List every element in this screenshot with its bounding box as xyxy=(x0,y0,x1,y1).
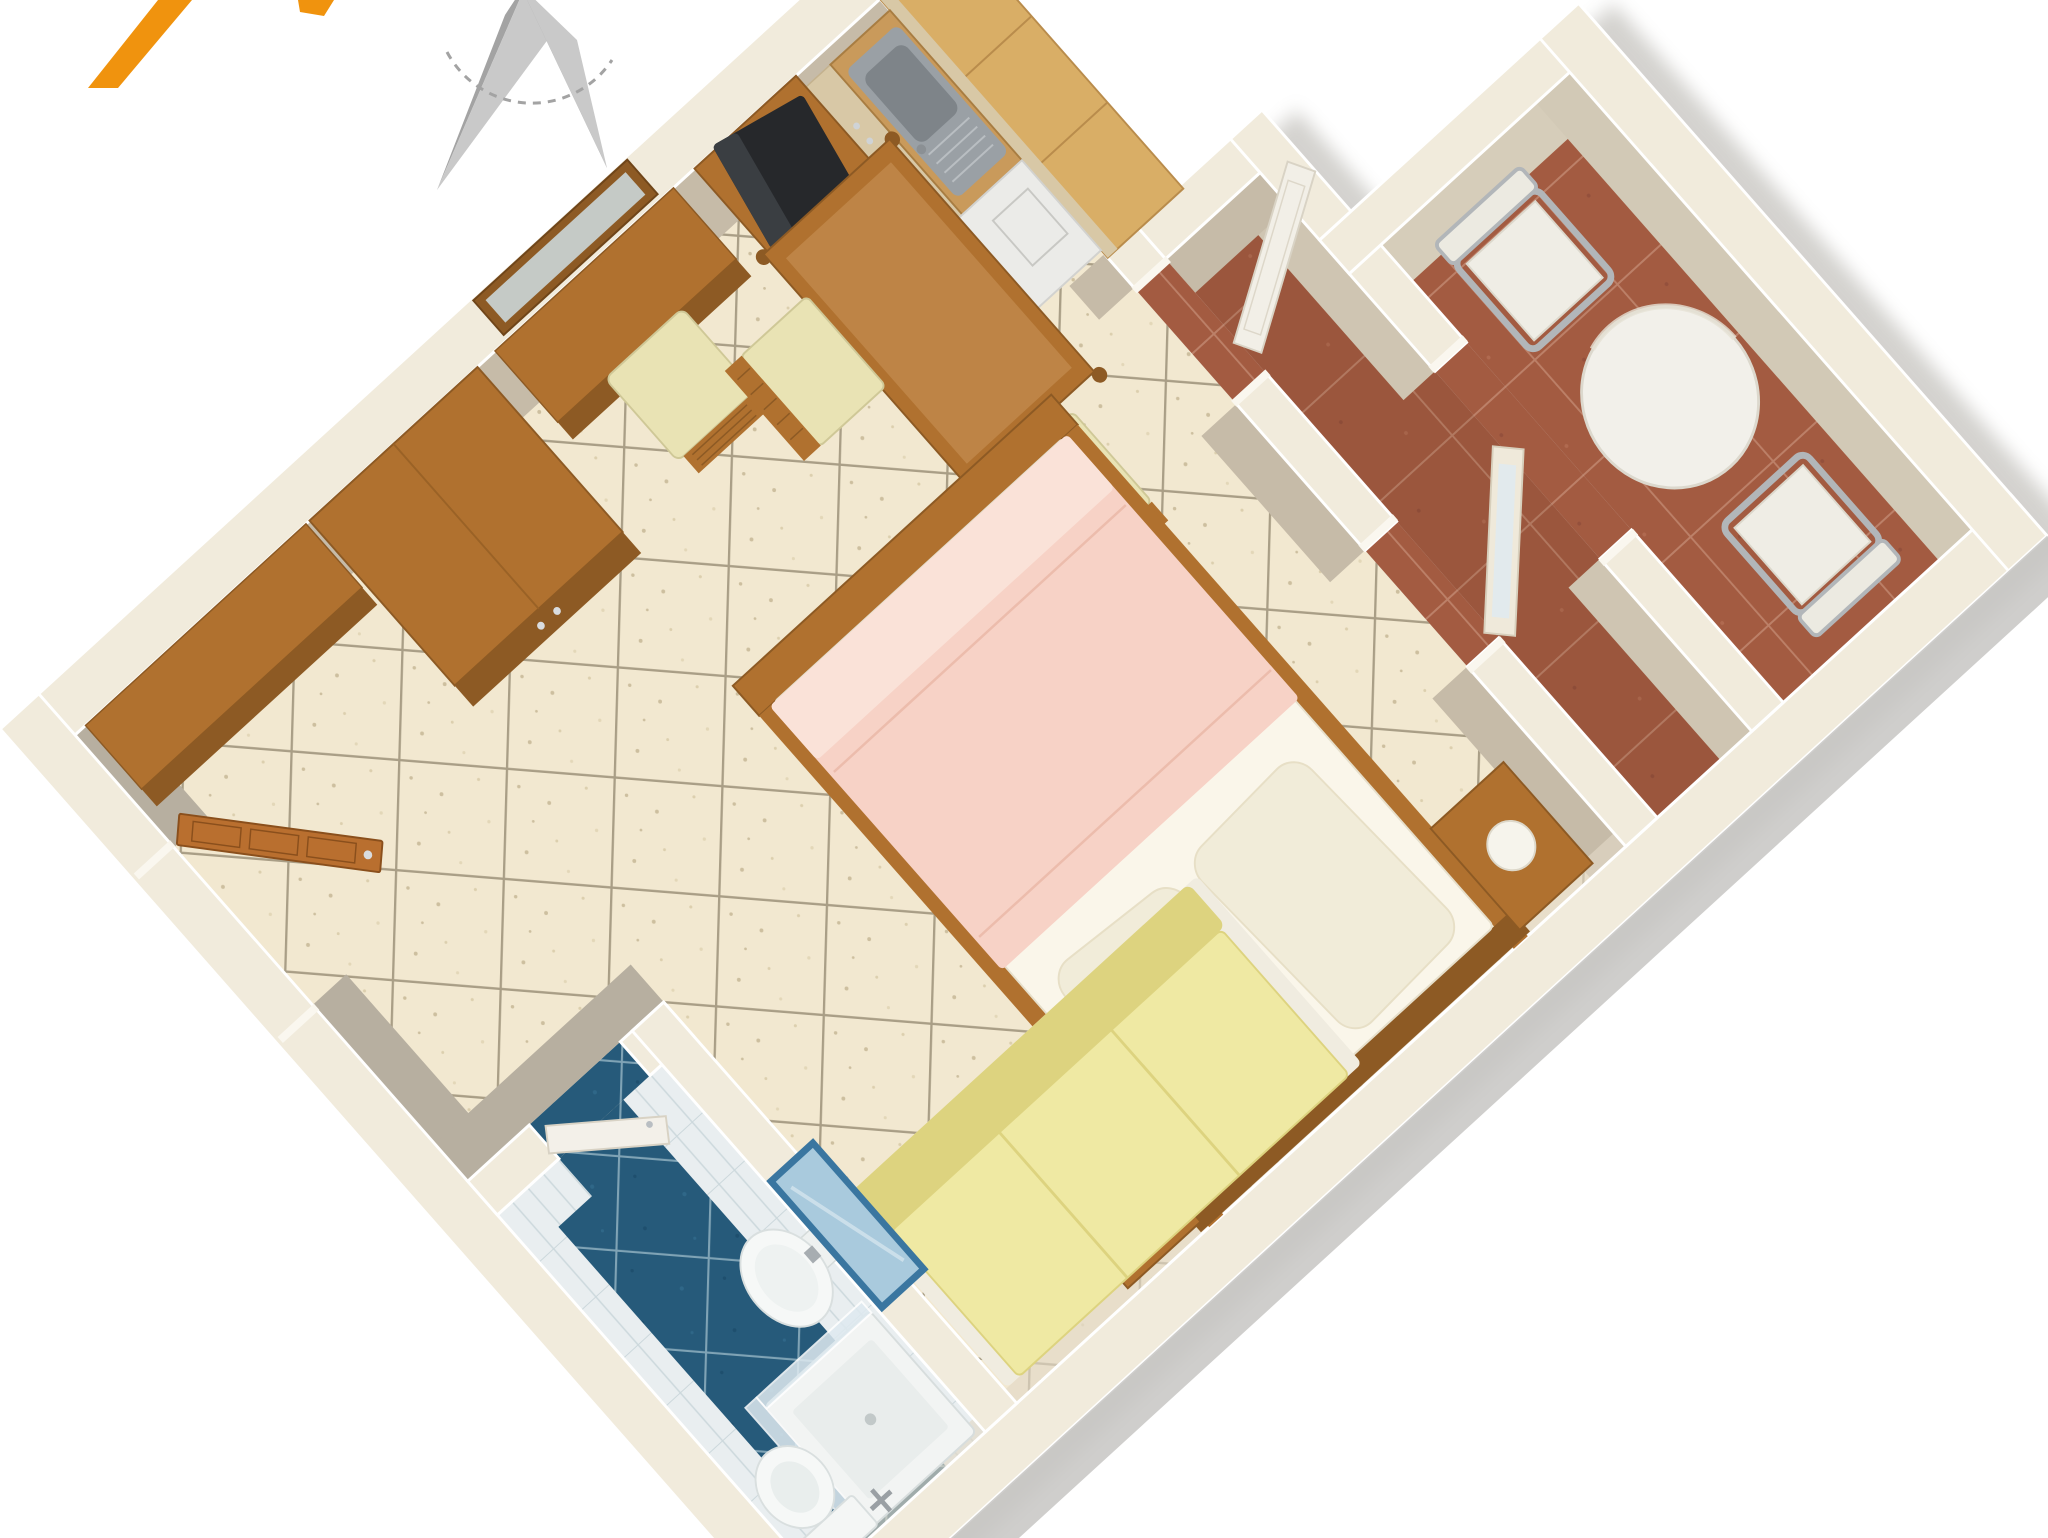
floorplan-svg xyxy=(0,0,2048,1538)
compass-icon xyxy=(437,0,612,190)
floorplan-render xyxy=(0,0,2048,1538)
apartment xyxy=(0,0,2048,1538)
logo-orange-icon xyxy=(88,0,334,88)
